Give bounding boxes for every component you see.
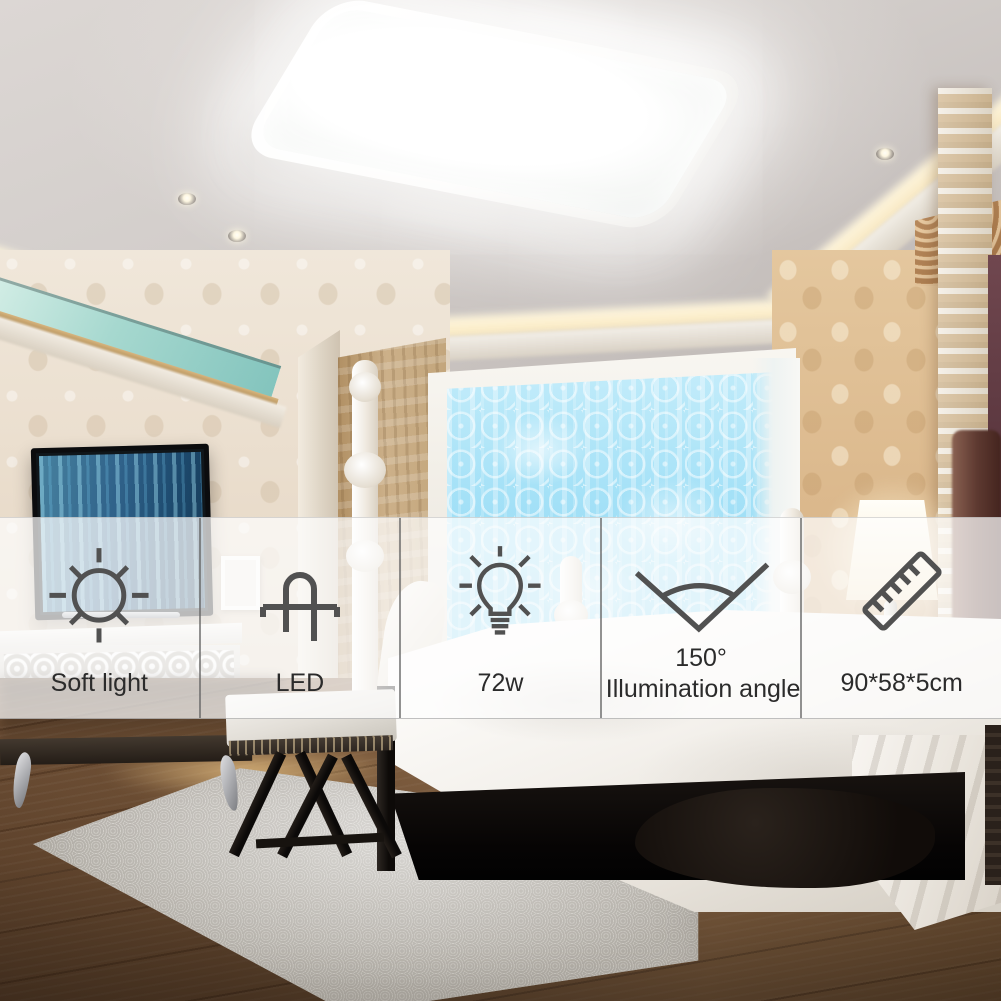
feature-band: Soft light LED 72w 150° Ill — [0, 517, 1001, 719]
recessed-spotlight — [876, 148, 894, 160]
feature-label: 150° Illumination angle — [606, 643, 797, 704]
feature-led: LED — [199, 518, 400, 718]
feature-label: Soft light — [4, 668, 195, 699]
product-lifestyle-image: Soft light LED 72w 150° Ill — [0, 0, 1001, 1001]
recessed-spotlight — [178, 193, 196, 205]
feature-label: 72w — [405, 668, 596, 699]
feature-label: LED — [205, 668, 396, 699]
sideboard-base — [0, 735, 252, 765]
feature-illumination-angle: 150° Illumination angle — [600, 518, 801, 718]
wicker-edge — [985, 725, 1001, 885]
sun-icon — [40, 534, 158, 652]
led-diode-icon — [250, 544, 350, 644]
feature-label: 90*58*5cm — [806, 668, 997, 699]
bedpost-finial — [349, 372, 381, 402]
ruler-icon — [849, 538, 955, 644]
feature-soft-light: Soft light — [0, 518, 199, 718]
feature-wattage: 72w — [399, 518, 600, 718]
feature-label: Illumination angle — [606, 674, 797, 705]
feature-dimensions: 90*58*5cm — [800, 518, 1001, 718]
light-bulb-icon — [448, 542, 552, 646]
feature-value: 150° — [606, 643, 797, 674]
illumination-angle-icon — [626, 558, 776, 644]
under-bed-cushion — [635, 788, 935, 888]
bedpost-turning — [344, 452, 386, 488]
